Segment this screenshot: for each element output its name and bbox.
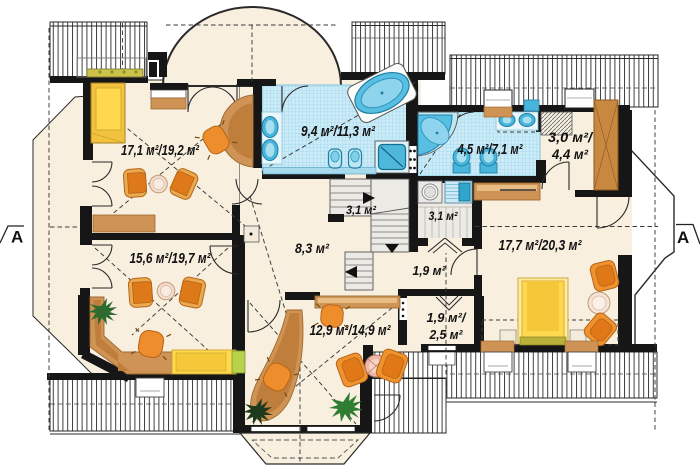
svg-text:3,1 м²: 3,1 м² xyxy=(346,203,377,217)
svg-text:2,5 м²: 2,5 м² xyxy=(429,327,464,342)
svg-text:17,1 м²/19,2 м²: 17,1 м²/19,2 м² xyxy=(121,143,200,159)
svg-text:1,9 м²: 1,9 м² xyxy=(413,263,447,278)
svg-text:15,6 м²/19,7 м²: 15,6 м²/19,7 м² xyxy=(130,251,212,267)
svg-text:A: A xyxy=(677,228,689,247)
svg-text:9,4 м²/11,3 м²: 9,4 м²/11,3 м² xyxy=(301,124,376,140)
svg-text:8,3 м²: 8,3 м² xyxy=(295,241,329,256)
svg-text:17,7 м²/20,3 м²: 17,7 м²/20,3 м² xyxy=(499,238,583,254)
svg-text:A: A xyxy=(11,228,23,247)
svg-text:1,9 м²/: 1,9 м²/ xyxy=(427,310,467,325)
svg-text:4,4 м²: 4,4 м² xyxy=(551,146,588,162)
svg-text:12,9 м²/14,9 м²: 12,9 м²/14,9 м² xyxy=(310,323,392,339)
svg-text:3,1 м²: 3,1 м² xyxy=(429,209,459,223)
svg-text:4,5 м²/7,1 м²: 4,5 м²/7,1 м² xyxy=(457,142,524,158)
svg-text:3,0 м²/: 3,0 м²/ xyxy=(548,129,594,145)
